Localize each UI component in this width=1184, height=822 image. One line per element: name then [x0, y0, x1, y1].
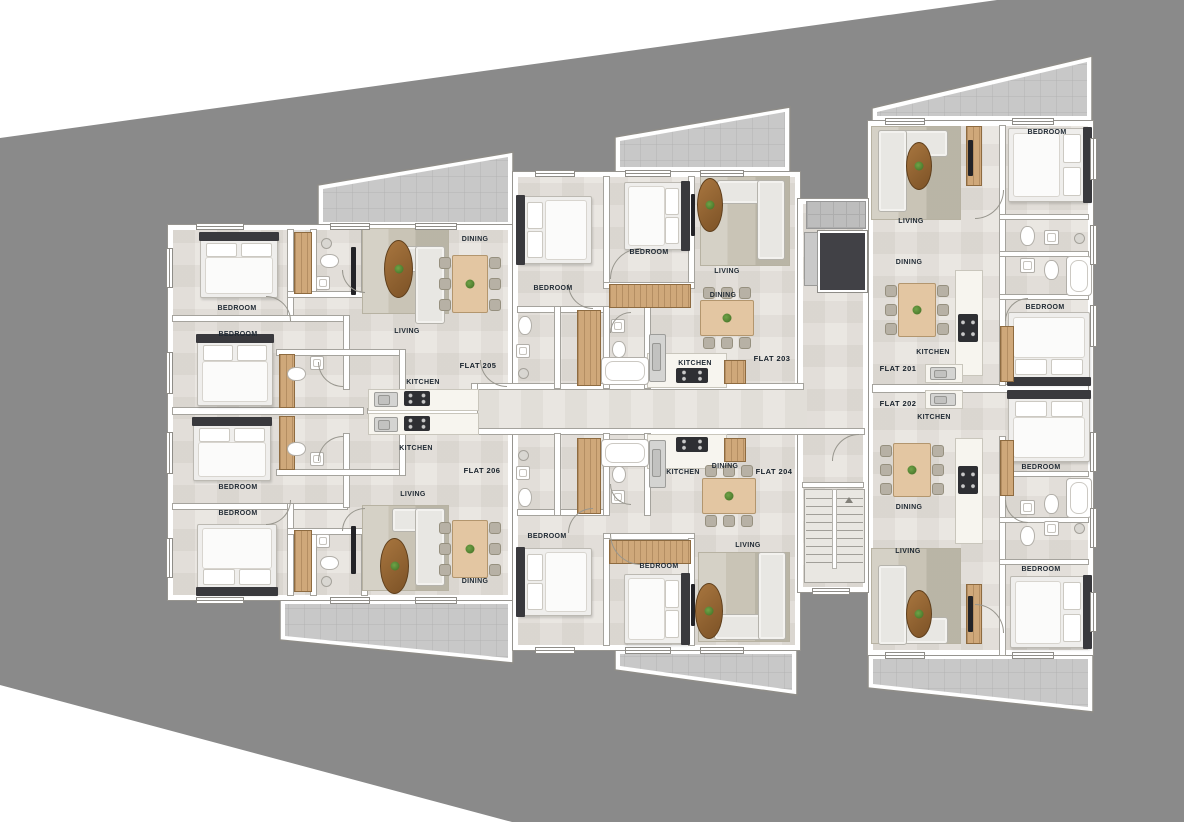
- double-bed: [200, 234, 278, 298]
- coffee-table: [697, 178, 723, 232]
- sofa: [878, 130, 907, 212]
- room-label: BEDROOM: [1021, 566, 1060, 574]
- stove: [404, 391, 430, 406]
- headboard: [1007, 390, 1091, 399]
- stove: [676, 437, 708, 452]
- pillow: [1015, 401, 1047, 417]
- flat-label: FLAT 202: [880, 400, 917, 408]
- double-bed: [1010, 576, 1090, 648]
- tv: [691, 584, 695, 626]
- room-label: LIVING: [714, 268, 739, 276]
- interior-wall: [555, 307, 560, 388]
- pillow: [527, 583, 543, 610]
- interior-wall: [288, 230, 293, 320]
- window: [330, 223, 370, 230]
- duvet: [628, 186, 665, 245]
- pillow: [234, 428, 265, 442]
- elevator-panel: [804, 232, 818, 286]
- window: [535, 170, 575, 177]
- plant-icon: [723, 314, 732, 323]
- window: [1012, 118, 1054, 125]
- plant-icon: [913, 306, 922, 315]
- shower-head: [518, 450, 529, 461]
- dining-set: [452, 255, 488, 313]
- window: [1090, 592, 1097, 632]
- toilet: [518, 488, 532, 507]
- pillow: [665, 188, 679, 215]
- plant-icon: [394, 265, 403, 274]
- plant-icon: [915, 162, 924, 171]
- chair: [489, 564, 501, 576]
- toilet: [1020, 526, 1035, 546]
- window: [1090, 138, 1097, 180]
- duvet: [198, 442, 266, 477]
- room-label: LIVING: [895, 548, 920, 556]
- duvet: [1013, 417, 1085, 457]
- room-label: LIVING: [735, 542, 760, 550]
- window: [885, 118, 925, 125]
- headboard: [516, 195, 525, 265]
- wardrobe: [1000, 326, 1014, 382]
- window: [166, 248, 173, 288]
- room-label: LIVING: [400, 491, 425, 499]
- bathtub: [1066, 256, 1092, 296]
- chair: [439, 299, 451, 311]
- chair: [739, 287, 751, 299]
- room-label: DINING: [896, 504, 923, 512]
- dining-set: [702, 478, 756, 514]
- stove: [958, 314, 978, 342]
- toilet: [1044, 260, 1059, 280]
- chair: [880, 445, 892, 457]
- room-label: BEDROOM: [629, 249, 668, 257]
- plant-icon: [390, 562, 399, 571]
- wardrobe: [294, 232, 312, 294]
- room-label: KITCHEN: [666, 469, 700, 477]
- pillow: [527, 231, 543, 258]
- duvet: [545, 200, 588, 259]
- pillow: [1051, 359, 1083, 375]
- plant-icon: [466, 545, 475, 554]
- flat-label: FLAT 204: [756, 468, 793, 476]
- window: [535, 647, 575, 654]
- pillow: [237, 345, 267, 361]
- window: [700, 647, 744, 654]
- floor-plan: FLAT 205 BEDROOM BEDROOM LIVING DINING K…: [0, 0, 1184, 822]
- pillow: [1063, 134, 1081, 163]
- kitchen-sink: [374, 392, 398, 407]
- window: [625, 170, 671, 177]
- toilet: [320, 556, 339, 570]
- tv: [968, 596, 973, 632]
- double-bed: [518, 548, 592, 616]
- plant-icon: [908, 466, 917, 475]
- interior-wall: [555, 434, 560, 515]
- room-label: BEDROOM: [1021, 464, 1060, 472]
- bathroom-sink: [516, 466, 530, 480]
- headboard: [192, 417, 272, 426]
- headboard: [1007, 377, 1091, 386]
- pillow: [527, 554, 543, 581]
- room-label: BEDROOM: [218, 331, 257, 339]
- bathroom-sink: [316, 534, 330, 548]
- window: [1012, 652, 1054, 659]
- shaft-hatch: [806, 201, 866, 229]
- wardrobe: [1000, 440, 1014, 496]
- pillow: [203, 345, 233, 361]
- pillow: [1051, 401, 1083, 417]
- flat-label: FLAT 205: [460, 362, 497, 370]
- toilet: [612, 341, 626, 358]
- chair: [439, 522, 451, 534]
- window: [415, 597, 457, 604]
- wardrobe: [609, 284, 691, 308]
- bathroom-sink: [316, 276, 330, 290]
- room-label: KITCHEN: [406, 379, 440, 387]
- double-bed: [624, 182, 688, 250]
- chair: [932, 464, 944, 476]
- bathroom-sink: [1044, 230, 1059, 245]
- double-bed: [193, 419, 271, 481]
- headboard: [196, 587, 278, 596]
- plant-icon: [705, 607, 714, 616]
- chair: [880, 483, 892, 495]
- plant-icon: [706, 201, 715, 210]
- duvet: [628, 578, 665, 639]
- room-label: LIVING: [394, 328, 419, 336]
- pillow: [239, 569, 271, 585]
- pillow: [199, 428, 230, 442]
- coffee-table: [695, 583, 723, 639]
- cabinet: [724, 438, 746, 462]
- plant-icon: [725, 492, 734, 501]
- interior-wall: [277, 350, 405, 355]
- window: [1090, 225, 1097, 265]
- room-label: BEDROOM: [1027, 129, 1066, 137]
- duvet: [1015, 581, 1061, 644]
- tv: [691, 194, 695, 236]
- bathtub: [601, 439, 649, 467]
- bathtub: [1066, 478, 1092, 518]
- dining-set: [898, 283, 936, 337]
- kitchen-sink: [930, 393, 956, 406]
- chair: [739, 337, 751, 349]
- chair: [489, 299, 501, 311]
- pillow: [665, 610, 679, 638]
- chair: [489, 278, 501, 290]
- shower-head: [518, 368, 529, 379]
- pillow: [665, 217, 679, 244]
- room-label: BEDROOM: [639, 563, 678, 571]
- flat-label: FLAT 206: [464, 467, 501, 475]
- room-label: BEDROOM: [533, 285, 572, 293]
- duvet: [205, 257, 273, 294]
- stair-flight: [837, 491, 863, 566]
- bathroom-sink: [1020, 258, 1035, 273]
- room-label: KITCHEN: [399, 445, 433, 453]
- room-label: BEDROOM: [1025, 304, 1064, 312]
- window: [1090, 305, 1097, 347]
- room-label: DINING: [710, 292, 737, 300]
- chair: [721, 337, 733, 349]
- chair: [885, 323, 897, 335]
- stove: [404, 416, 430, 431]
- headboard: [681, 181, 690, 251]
- toilet: [1020, 226, 1035, 246]
- duvet: [1013, 317, 1085, 358]
- interior-wall: [277, 470, 405, 475]
- room-label: BEDROOM: [527, 533, 566, 541]
- sofa: [878, 565, 907, 645]
- chair: [885, 285, 897, 297]
- window: [166, 352, 173, 394]
- interior-wall: [400, 350, 405, 391]
- chair: [932, 445, 944, 457]
- room-label: KITCHEN: [917, 414, 951, 422]
- double-bed: [518, 196, 592, 264]
- chair: [489, 522, 501, 534]
- toilet: [518, 316, 532, 335]
- stove: [958, 466, 978, 494]
- window: [885, 652, 925, 659]
- wardrobe: [279, 354, 295, 408]
- bathtub: [601, 357, 649, 385]
- flat-label: FLAT 203: [754, 355, 791, 363]
- pillow: [665, 580, 679, 608]
- room-label: DINING: [462, 236, 489, 244]
- chair: [932, 483, 944, 495]
- pillow: [1063, 582, 1081, 611]
- elevator-shaft: [818, 231, 867, 292]
- headboard: [199, 232, 279, 241]
- dining-set: [700, 300, 754, 336]
- pillow: [527, 202, 543, 229]
- interior-wall: [803, 483, 863, 487]
- bathroom-sink: [516, 344, 530, 358]
- wardrobe: [577, 310, 601, 386]
- room-label: DINING: [462, 578, 489, 586]
- window: [812, 588, 850, 595]
- room-label: BEDROOM: [218, 510, 257, 518]
- chair: [705, 515, 717, 527]
- double-bed: [197, 524, 277, 594]
- double-bed: [1008, 312, 1090, 384]
- toilet: [612, 466, 626, 483]
- room-label: DINING: [712, 463, 739, 471]
- plant-icon: [466, 280, 475, 289]
- room-label: LIVING: [898, 218, 923, 226]
- chair: [937, 323, 949, 335]
- room-label: KITCHEN: [678, 360, 712, 368]
- kitchen-sink: [649, 334, 666, 382]
- bathroom-sink: [1044, 521, 1059, 536]
- chair: [439, 564, 451, 576]
- toilet: [1044, 494, 1059, 514]
- chair: [937, 285, 949, 297]
- shower-head: [321, 238, 332, 249]
- stove: [676, 368, 708, 383]
- interior-wall: [288, 504, 293, 595]
- pillow: [203, 569, 235, 585]
- interior-wall: [173, 504, 347, 509]
- duvet: [1013, 133, 1060, 198]
- sofa: [757, 180, 785, 260]
- coffee-table: [384, 240, 413, 298]
- chair: [489, 257, 501, 269]
- window: [415, 223, 457, 230]
- wardrobe: [294, 530, 312, 592]
- tv: [968, 140, 973, 176]
- room-label: BEDROOM: [218, 484, 257, 492]
- pillow: [1063, 167, 1081, 196]
- window: [196, 597, 244, 604]
- chair: [439, 543, 451, 555]
- staircase: [804, 489, 865, 583]
- duvet: [202, 528, 272, 568]
- window: [330, 597, 370, 604]
- window: [166, 538, 173, 578]
- shower-head: [1074, 233, 1085, 244]
- tv: [351, 526, 356, 574]
- headboard: [681, 573, 690, 645]
- corridor: [477, 389, 807, 429]
- dining-set: [452, 520, 488, 578]
- interior-wall: [604, 177, 609, 283]
- chair: [723, 515, 735, 527]
- room-label: BEDROOM: [217, 305, 256, 313]
- chair: [885, 304, 897, 316]
- stair-divider: [833, 490, 836, 568]
- pillow: [241, 243, 272, 257]
- pillow: [206, 243, 237, 257]
- coffee-table: [906, 590, 932, 638]
- kitchen-sink: [930, 367, 956, 380]
- window: [700, 170, 744, 177]
- double-bed: [624, 574, 688, 644]
- sofa: [758, 552, 786, 640]
- toilet: [287, 442, 306, 456]
- double-bed: [1008, 392, 1090, 462]
- plant-icon: [915, 610, 924, 619]
- window: [166, 432, 173, 474]
- duvet: [545, 552, 588, 611]
- party-wall: [173, 408, 363, 414]
- kitchen-sink: [374, 417, 398, 432]
- room-label: DINING: [896, 259, 923, 267]
- window: [196, 223, 244, 230]
- chair: [880, 464, 892, 476]
- window: [1090, 432, 1097, 472]
- pillow: [1015, 359, 1047, 375]
- coffee-table: [906, 142, 932, 190]
- chair: [937, 304, 949, 316]
- chair: [741, 515, 753, 527]
- cabinet: [724, 360, 746, 384]
- chair: [489, 543, 501, 555]
- kitchen-sink: [649, 440, 666, 488]
- chair: [741, 465, 753, 477]
- interior-wall: [1000, 560, 1088, 564]
- headboard: [516, 547, 525, 617]
- interior-wall: [1000, 215, 1088, 219]
- dining-set: [893, 443, 931, 497]
- coffee-table: [380, 538, 409, 594]
- wardrobe: [577, 438, 601, 514]
- shower-head: [321, 576, 332, 587]
- interior-wall: [400, 434, 405, 475]
- window: [1090, 508, 1097, 548]
- chair: [439, 278, 451, 290]
- chair: [703, 337, 715, 349]
- room-label: KITCHEN: [916, 349, 950, 357]
- window: [625, 647, 671, 654]
- double-bed: [197, 336, 273, 406]
- pillow: [1063, 614, 1081, 643]
- flat-label: FLAT 201: [880, 365, 917, 373]
- shower-head: [1074, 523, 1085, 534]
- chair: [439, 257, 451, 269]
- double-bed: [1008, 128, 1090, 202]
- duvet: [202, 361, 269, 401]
- interior-wall: [173, 316, 347, 321]
- toilet: [320, 254, 339, 268]
- stair-flight: [806, 491, 832, 566]
- toilet: [287, 367, 306, 381]
